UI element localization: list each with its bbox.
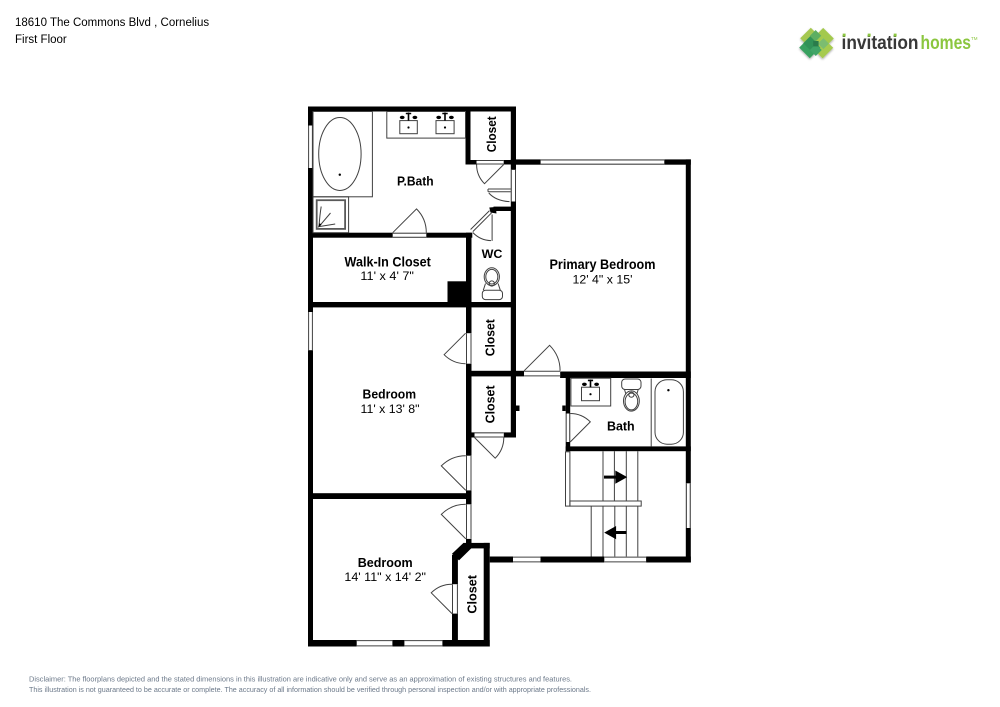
svg-text:Closet: Closet	[484, 385, 498, 424]
svg-text:Bath: Bath	[607, 419, 635, 434]
svg-text:Disclaimer: The floorplans dep: Disclaimer: The floorplans depicted and …	[29, 677, 572, 684]
svg-text:Bedroom: Bedroom	[363, 387, 417, 402]
svg-text:Bedroom: Bedroom	[358, 555, 413, 570]
svg-text:18610 The Commons Blvd , Corne: 18610 The Commons Blvd , Cornelius	[15, 17, 209, 29]
svg-text:11' x 4' 7": 11' x 4' 7"	[360, 269, 414, 283]
svg-text:Primary Bedroom: Primary Bedroom	[550, 257, 656, 272]
svg-text:TM: TM	[971, 36, 978, 41]
svg-text:P.Bath: P.Bath	[397, 175, 434, 189]
svg-text:invitation: invitation	[842, 32, 919, 54]
svg-text:Closet: Closet	[465, 574, 479, 613]
svg-text:11' x 13' 8": 11' x 13' 8"	[361, 402, 420, 416]
svg-text:Closet: Closet	[485, 116, 499, 153]
svg-text:homes: homes	[921, 32, 972, 54]
svg-text:WC: WC	[482, 247, 503, 261]
svg-text:First Floor: First Floor	[15, 34, 67, 46]
svg-text:Walk-In Closet: Walk-In Closet	[345, 255, 432, 270]
svg-text:Closet: Closet	[484, 318, 498, 356]
svg-text:14' 11" x 14' 2": 14' 11" x 14' 2"	[344, 570, 426, 584]
svg-text:This illustration is not guara: This illustration is not guaranteed to b…	[29, 687, 591, 694]
svg-text:12' 4" x 15': 12' 4" x 15'	[573, 273, 633, 287]
